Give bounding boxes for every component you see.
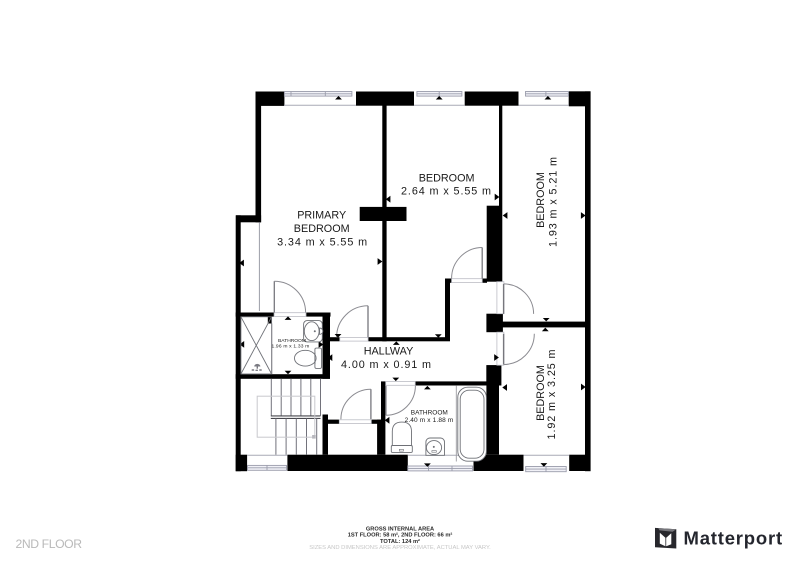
svg-text:Matterport: Matterport xyxy=(684,527,783,548)
svg-text:HALLWAY: HALLWAY xyxy=(364,346,414,358)
svg-text:SIZES AND DIMENSIONS ARE APPRO: SIZES AND DIMENSIONS ARE APPROXIMATE, AC… xyxy=(309,545,491,551)
svg-text:4.00 m x 0.91 m: 4.00 m x 0.91 m xyxy=(341,359,432,371)
svg-text:2.40 m x 1.88 m: 2.40 m x 1.88 m xyxy=(405,417,454,424)
svg-text:BEDROOM: BEDROOM xyxy=(294,223,350,235)
svg-text:3.34 m x 5.55 m: 3.34 m x 5.55 m xyxy=(277,236,368,248)
svg-text:2ND FLOOR: 2ND FLOOR xyxy=(16,537,83,551)
svg-text:1.96 m x 1.33 m: 1.96 m x 1.33 m xyxy=(271,343,309,349)
svg-text:BEDROOM: BEDROOM xyxy=(419,172,475,184)
svg-text:1ST FLOOR: 58 m², 2ND FLOOR: 6: 1ST FLOOR: 58 m², 2ND FLOOR: 66 m² xyxy=(348,531,453,538)
svg-text:1.93 m x 5.21 m: 1.93 m x 5.21 m xyxy=(548,156,560,247)
svg-text:2.64 m x 5.55 m: 2.64 m x 5.55 m xyxy=(401,185,492,197)
svg-text:PRIMARY: PRIMARY xyxy=(297,210,346,222)
svg-text:1.92 m x 3.25 m: 1.92 m x 3.25 m xyxy=(546,349,558,440)
svg-text:BATHROOM: BATHROOM xyxy=(278,338,306,344)
svg-text:BEDROOM: BEDROOM xyxy=(535,172,547,228)
svg-text:BATHROOM: BATHROOM xyxy=(411,410,448,417)
